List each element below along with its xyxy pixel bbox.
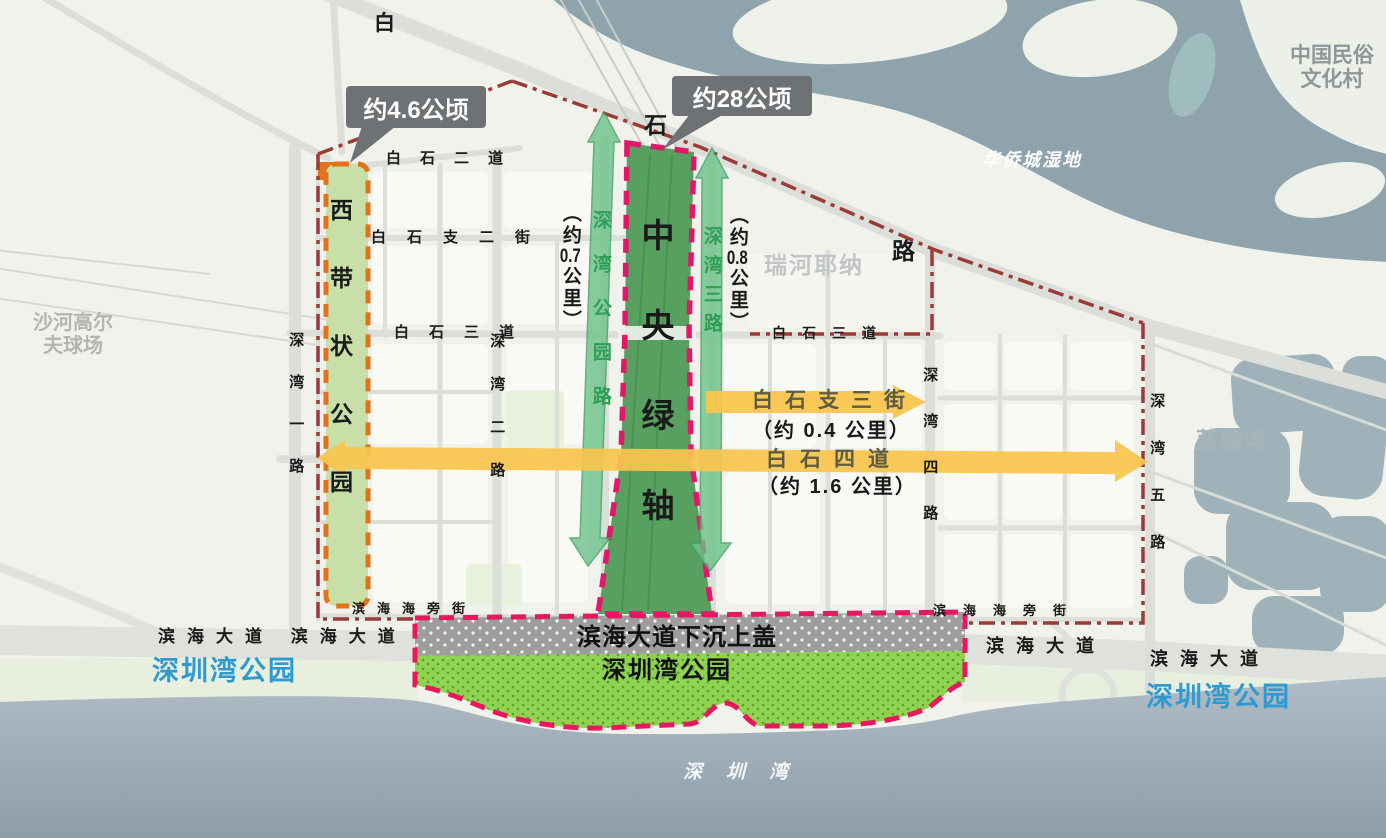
bay-park-label-left: 深圳湾公园 (152, 656, 297, 687)
baishi-san-dao-label-east: 白石三道 (772, 325, 892, 341)
bay-park-bar-label: 深圳湾公园 (602, 657, 732, 685)
baishi-lu-char-bai: 白 (374, 12, 395, 36)
shenwan-san-lu-length: （约0.8公里） (726, 205, 748, 334)
cover-plate-label: 滨海大道下沉上盖 (577, 624, 777, 652)
west-belt-park-label: 西带状公园 (326, 198, 352, 538)
baishi-si-dao-label: 白石四道 (766, 448, 902, 472)
baishi-zhi-san-jie-length: （约 0.4 公里） (752, 420, 911, 443)
binhai-dadao-label-left: 滨海大道 滨海大道 (158, 627, 407, 647)
binhai-dadao-label-right: 滨海大道 (1150, 649, 1270, 670)
west-park-area-bubble: 约4.6公顷 (346, 86, 486, 128)
golf-course-label: 沙河高尔 夫球场 (14, 312, 132, 358)
shenwan-er-lu-label: 深湾二路 (488, 333, 505, 505)
shenwan-si-lu-label: 深湾四路 (921, 367, 938, 551)
central-axis-label: 中央绿轴 (636, 218, 674, 578)
oct-wetland-label: 华侨城湿地 (982, 150, 1082, 171)
lanying-bay-label: 蓝楹湾 (1196, 428, 1268, 453)
shenwan-park-road-length: （约0.7公里） (559, 203, 581, 332)
shenwan-wu-lu-label: 深湾五路 (1148, 393, 1165, 581)
baishi-san-dao-label-west: 白石三道 (394, 324, 534, 341)
planning-map: 约4.6公顷 约28公顷 中国民俗 文化村 华侨城湿地 沙河高尔 夫球场 瑞河耶… (0, 0, 1386, 838)
baishi-lu-char-shi: 石 (644, 112, 667, 138)
bay-park-label-right: 深圳湾公园 (1146, 682, 1291, 713)
baishi-lu-char-lu: 路 (892, 238, 915, 264)
binhai-haipang-jie-label-west: 滨海海旁街 (352, 602, 477, 617)
shenwan-san-lu-label: 深湾三路 (700, 226, 722, 342)
baishi-er-dao-label: 白石二道 (386, 150, 522, 167)
baishi-si-dao-length: （约 1.6 公里） (758, 476, 917, 499)
ruihe-yena-label: 瑞河耶纳 (764, 252, 864, 278)
shenwan-yi-lu-label: 深湾一路 (287, 332, 304, 500)
shenzhen-bay-label: 深圳湾 (683, 762, 812, 784)
binhai-dadao-label-mid: 滨海大道 (986, 636, 1106, 657)
binhai-haipang-jie-label-east: 滨海海旁街 (933, 604, 1083, 619)
baishi-zhi-er-jie-label: 白石支二街 (371, 229, 551, 246)
baishi-zhi-san-jie-label: 白石支三街 (752, 389, 917, 413)
axis-area-bubble: 约28公顷 (672, 76, 812, 116)
shenwan-park-road-label: 深湾公园路 (589, 210, 611, 430)
folk-village-label: 中国民俗 文化村 (1282, 44, 1382, 92)
